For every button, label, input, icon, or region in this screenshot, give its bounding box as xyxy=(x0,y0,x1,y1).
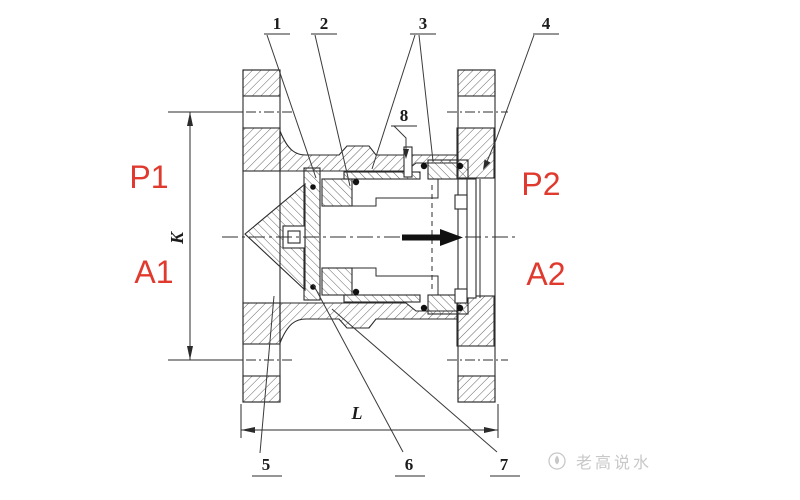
valve-section-drawing: 1 2 3 4 8 5 6 7 K L P1 A1 P2 xyxy=(0,0,800,500)
port-label-p1: P1 xyxy=(129,159,168,195)
dimension-l: L xyxy=(241,403,498,438)
dimension-k: K xyxy=(167,112,243,360)
dimension-k-label: K xyxy=(167,230,187,245)
port-label-a1: A1 xyxy=(134,254,173,290)
drawing-canvas: 1 2 3 4 8 5 6 7 K L P1 A1 P2 xyxy=(0,0,800,500)
watermark: 老高说水 xyxy=(549,453,652,472)
callout-6: 6 xyxy=(405,455,414,474)
watermark-text: 老高说水 xyxy=(576,454,652,472)
callout-1: 1 xyxy=(273,14,282,33)
callout-8: 8 xyxy=(400,106,409,125)
callout-7: 7 xyxy=(500,455,509,474)
callout-2: 2 xyxy=(320,14,329,33)
callout-5: 5 xyxy=(262,455,271,474)
dimension-l-label: L xyxy=(351,403,363,423)
port-label-a2: A2 xyxy=(526,256,565,292)
watermark-logo-icon xyxy=(549,453,565,469)
callout-3: 3 xyxy=(419,14,428,33)
callout-4: 4 xyxy=(542,14,551,33)
port-label-p2: P2 xyxy=(521,166,560,202)
